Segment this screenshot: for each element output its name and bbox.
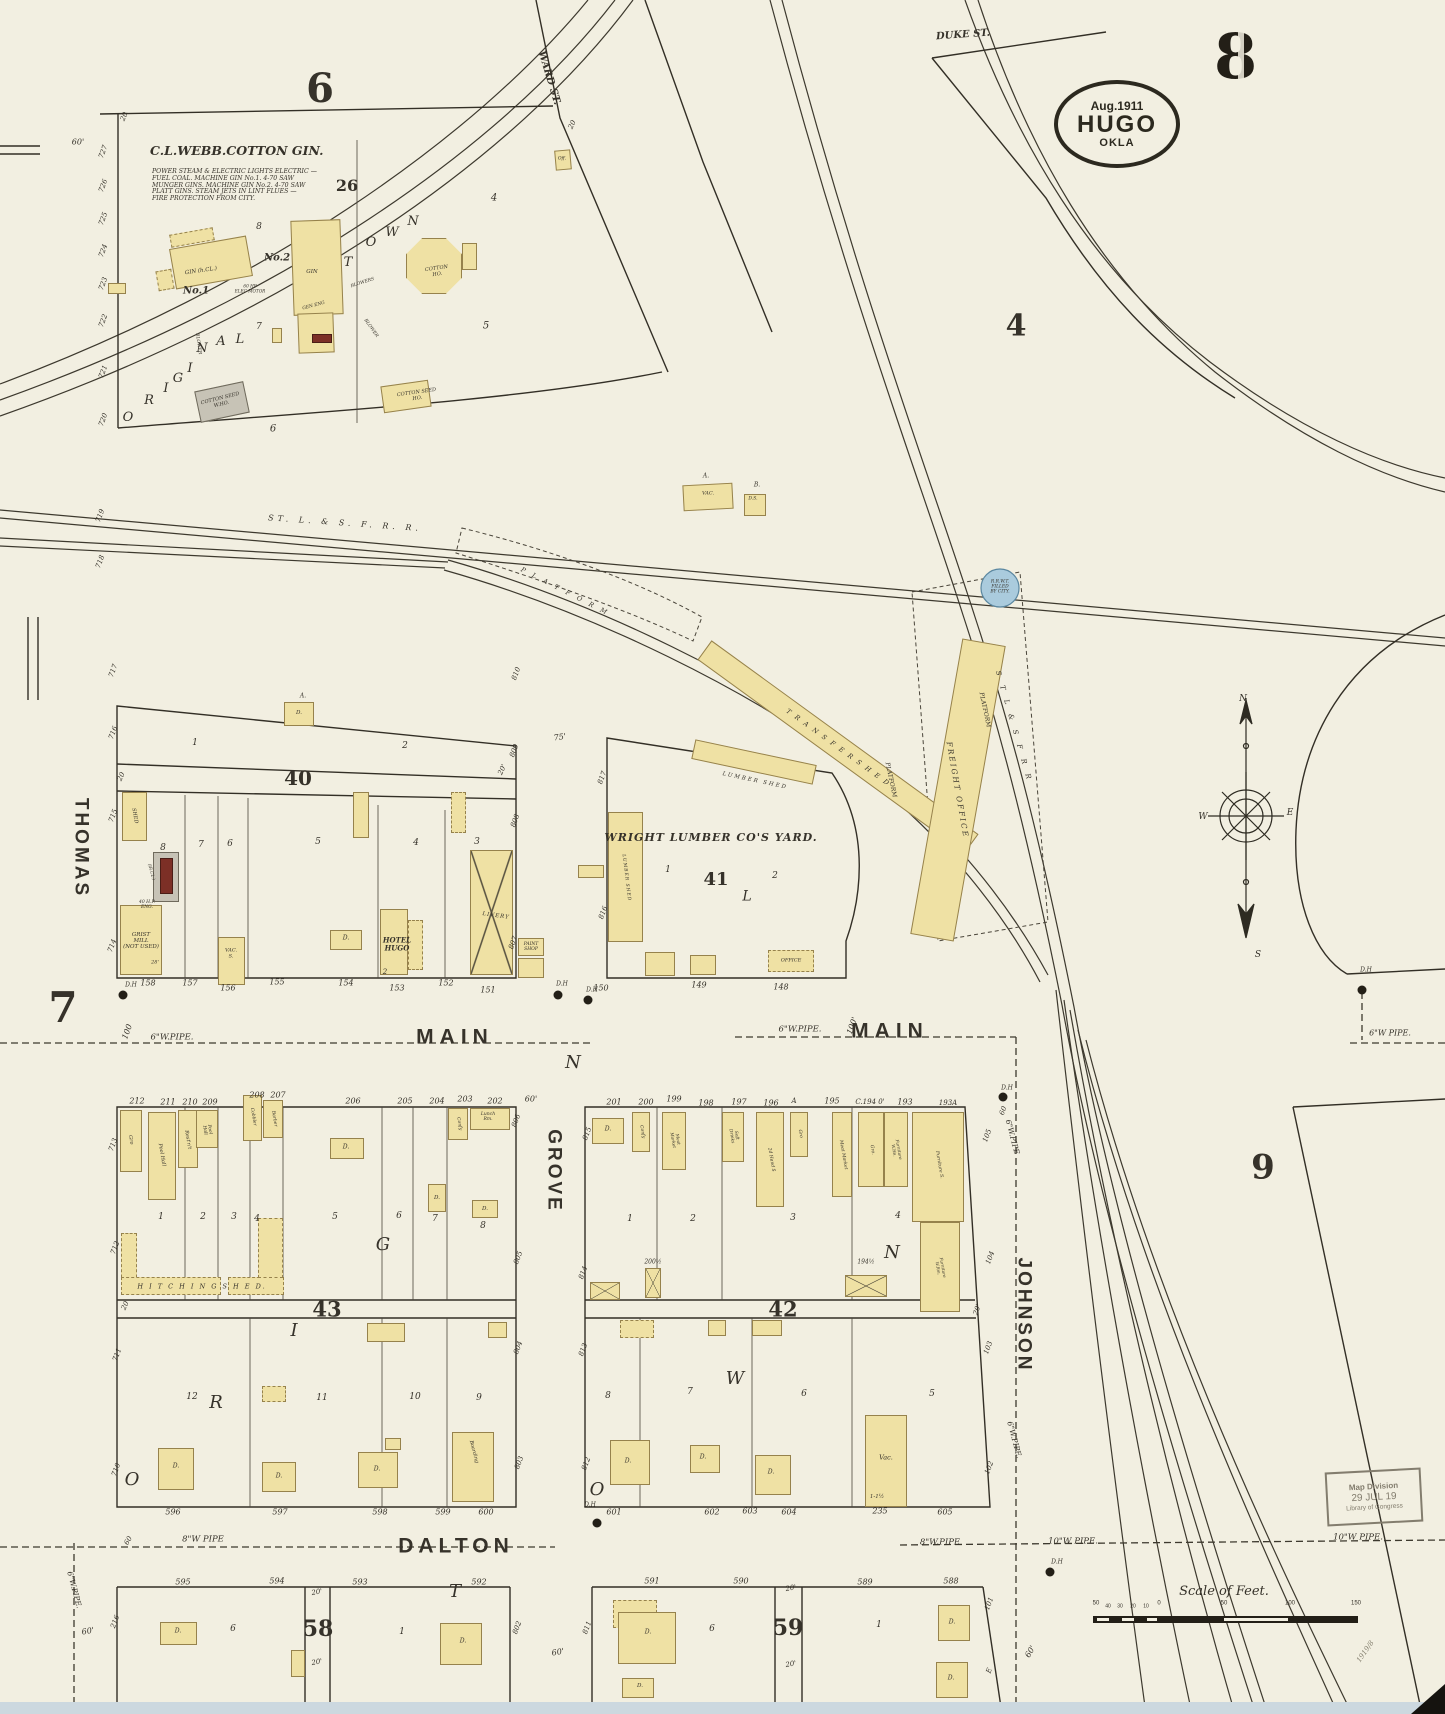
cotton-gin-notes: POWER STEAM & ELECTRIC LIGHTS ELECTRIC —… — [152, 169, 317, 203]
map-label: 202 — [487, 1098, 502, 1107]
map-label: 211 — [160, 1099, 175, 1108]
publication-stamp: Aug.1911 HUGO OKLA — [1054, 80, 1180, 168]
map-label: 5 — [929, 1390, 935, 1400]
cotton-gin-title: C.L.WEBB.COTTON GIN. — [150, 144, 323, 158]
plat-letter: N — [407, 215, 418, 229]
map-label: 5 — [332, 1213, 338, 1223]
map-label: 20 — [1130, 1604, 1136, 1610]
map-label: 40 H.P. ENG. — [139, 901, 155, 911]
map-label: 60 — [999, 1105, 1009, 1116]
pipe-label: 6"W.PIPE. — [151, 1033, 194, 1042]
plat-letter: N — [565, 1053, 581, 1073]
map-label: 4 — [413, 839, 419, 849]
map-label: D. — [434, 1195, 440, 1201]
map-label: 6 — [230, 1625, 236, 1635]
map-label: 20' — [785, 1660, 797, 1669]
map-label: D. — [482, 1206, 488, 1212]
map-label: D.H — [1360, 968, 1372, 975]
double-hydrant-dot — [1358, 986, 1367, 995]
map-label: 60' — [1024, 1644, 1038, 1659]
map-label: SHED — [130, 808, 138, 824]
sanborn-map-sheet: DUKE ST.WARD ST.660'2020C.L.WEBB.COTTON … — [0, 0, 1445, 1714]
map-label: 712 — [110, 1240, 122, 1255]
map-label: 150 — [1351, 1601, 1361, 1608]
stamp-date: Aug.1911 — [1091, 100, 1144, 112]
map-label: 20 — [117, 771, 128, 782]
map-label: D.H — [1051, 1560, 1063, 1567]
map-label: 7 — [256, 323, 262, 333]
map-label: 212 — [129, 1098, 144, 1107]
double-hydrant-dot — [1046, 1568, 1055, 1577]
transfer-shed-label: T R A N S F E R S H E D — [785, 708, 892, 788]
map-label: GEN ENG — [302, 302, 326, 313]
map-label: 716 — [108, 725, 120, 740]
map-label: 103 — [983, 1340, 995, 1355]
sheet-number-stencil-stripe — [1238, 28, 1244, 80]
plat-letter: O — [123, 411, 134, 425]
map-label: 1 — [399, 1628, 405, 1638]
map-label: 588 — [943, 1578, 958, 1587]
plat-letter: A — [216, 335, 225, 349]
map-label: GIN — [306, 269, 317, 275]
plat-letter: T — [449, 1582, 461, 1602]
map-label: Gro — [126, 1135, 133, 1145]
street-duke: DUKE ST. — [936, 28, 991, 43]
map-label: 75' — [553, 733, 566, 743]
map-label: D. — [276, 1474, 283, 1481]
map-label: D. — [949, 1620, 956, 1627]
map-label: 8 — [480, 1222, 486, 1232]
map-label: D.H — [586, 988, 598, 995]
map-label: 8 — [256, 223, 262, 233]
map-label: 7 — [198, 841, 204, 851]
map-label: 209 — [202, 1099, 217, 1108]
map-label: 812 — [581, 1456, 593, 1471]
map-label: 20' — [311, 1658, 323, 1667]
map-label: Vac. — [879, 1454, 893, 1461]
map-label: 813 — [578, 1342, 590, 1357]
map-label: 104 — [985, 1250, 997, 1265]
map-label: 10 — [1143, 1604, 1149, 1610]
map-label: D.S. — [748, 498, 757, 503]
block-42: 42 — [768, 1297, 797, 1320]
map-label: 200 — [638, 1099, 653, 1108]
map-label: 6 — [227, 840, 233, 850]
map-label: 199 — [666, 1096, 681, 1105]
map-label: A. — [300, 694, 306, 701]
pipe-label: 6"W.PIPE. — [65, 1571, 83, 1610]
map-label: 809 — [509, 743, 521, 758]
pipe-label: 10"W PIPE. — [1048, 1537, 1098, 1546]
map-label: 193A — [939, 1100, 957, 1108]
map-label: 1 — [627, 1215, 633, 1225]
sheet-ref-6: 6 — [306, 67, 334, 111]
map-label: 1919/8 — [1356, 1640, 1376, 1665]
map-label: 100 — [121, 1023, 134, 1040]
plat-letter: I — [163, 382, 168, 396]
map-label: Confy — [637, 1125, 644, 1139]
scale-title: Scale of Feet. — [1179, 1585, 1269, 1599]
map-label: BLOWER — [362, 319, 378, 339]
map-label: LUMBER SHED — [620, 854, 631, 902]
map-label: 30 — [1117, 1604, 1123, 1610]
lumber-yard-label: WRIGHT LUMBER CO'S YARD. — [604, 832, 817, 844]
map-label: Confy — [454, 1117, 461, 1131]
map-label: 60 HP ELEC-MOTOR — [235, 284, 266, 293]
map-label: 10 — [409, 1393, 420, 1403]
map-label: 210 — [182, 1099, 197, 1108]
compass-w: W — [1198, 813, 1207, 823]
block-41: 41 — [703, 870, 728, 890]
map-label: 2 — [200, 1213, 206, 1223]
map-label: No.2 — [264, 253, 290, 264]
map-label: 235 — [872, 1508, 887, 1517]
map-label: Gro. — [868, 1145, 875, 1156]
map-label: 600 — [478, 1509, 493, 1518]
map-label: HOTEL HUGO — [383, 936, 411, 951]
map-label: 4 — [254, 1215, 260, 1225]
map-label: D.H — [556, 982, 568, 989]
plat-letter: T — [344, 256, 353, 270]
map-label: 198 — [698, 1100, 713, 1109]
map-label: 720 — [98, 412, 110, 427]
map-label: 156 — [220, 985, 235, 994]
map-label: 715 — [108, 808, 120, 823]
map-label: 714 — [107, 938, 119, 953]
map-label: D. — [700, 1455, 707, 1462]
pipe-label: 6"W.PIPE. — [1005, 1421, 1023, 1460]
platform-label: P L A T F O R M — [519, 566, 610, 617]
map-label: D.H — [1001, 1086, 1013, 1093]
map-label: 6 — [709, 1625, 715, 1635]
map-label: No.1 — [183, 286, 209, 297]
map-label: 593 — [352, 1579, 367, 1588]
map-label: 200½ — [644, 1260, 661, 1267]
map-label: D.H — [125, 983, 137, 990]
map-label: Boarding — [467, 1440, 478, 1464]
map-label: A — [791, 1098, 796, 1106]
block-58: 58 — [303, 1617, 334, 1641]
map-label: 20' — [973, 1304, 984, 1317]
map-label: PLATFORM — [977, 692, 991, 728]
double-hydrant-dot — [584, 996, 593, 1005]
sheet-ref-9: 9 — [1251, 1149, 1275, 1186]
plat-letter: W — [385, 226, 398, 240]
map-label: 5 — [315, 838, 321, 848]
map-label: Gro — [796, 1129, 802, 1138]
map-label: 149 — [691, 982, 706, 991]
map-label: D. — [948, 1676, 955, 1683]
map-label: 815 — [582, 1126, 594, 1141]
block-26: 26 — [336, 177, 358, 195]
map-label: 216 — [110, 1614, 122, 1629]
street-main: MAIN — [416, 1025, 494, 1048]
map-label: 155 — [269, 979, 284, 988]
map-label: 20' — [785, 1584, 797, 1593]
map-label: 723 — [98, 276, 110, 291]
map-label: COTTON HO. — [425, 265, 449, 279]
map-label: 726 — [98, 178, 110, 193]
map-label: D. — [343, 1145, 350, 1152]
map-label: 208 — [249, 1092, 264, 1101]
map-label: 12 — [186, 1393, 197, 1403]
plat-letter: I — [290, 1321, 297, 1341]
map-label: D. — [637, 1683, 643, 1689]
map-label: 60' — [81, 1627, 95, 1638]
map-label: 811 — [582, 1620, 594, 1635]
map-label: 605 — [937, 1509, 952, 1518]
map-label: 805 — [513, 1250, 525, 1265]
map-label: 1 — [665, 866, 671, 876]
map-label: H I T C H I N G S H E D. — [137, 1283, 266, 1290]
block-43: 43 — [312, 1297, 341, 1320]
map-label: 100 — [1285, 1601, 1295, 1608]
map-label: Furniture S. — [933, 1151, 943, 1179]
water-tank-note: R.R.W.T. FILLED BY CITY. — [990, 581, 1009, 596]
map-label: 802 — [512, 1620, 524, 1635]
map-label: Off. — [558, 158, 566, 163]
map-label: 3 — [474, 838, 480, 848]
railroad-label: S T L & S F R R — [993, 670, 1032, 784]
map-label: 594 — [269, 1578, 284, 1587]
map-label: 20 — [121, 1300, 132, 1311]
map-label: 60' — [72, 139, 84, 148]
map-label: 2 — [772, 872, 778, 882]
freight-office-label: FREIGHT OFFICE — [944, 741, 969, 839]
double-hydrant-dot — [999, 1093, 1008, 1102]
map-label: Pool Hall — [200, 1124, 211, 1135]
map-label: 725 — [98, 211, 110, 226]
loc-line3: Library of Congress — [1346, 1502, 1403, 1513]
map-label: 604 — [781, 1509, 796, 1518]
map-label: VAC. — [702, 491, 714, 497]
map-label: 602 — [704, 1509, 719, 1518]
map-label: 20' — [311, 1588, 323, 1597]
street-johnson: JOHNSON — [1013, 1258, 1034, 1373]
map-label: 60' — [551, 1648, 565, 1659]
map-label: 718 — [95, 554, 107, 569]
map-label: PAINT SHOP — [524, 943, 539, 953]
map-label: 5 — [483, 321, 489, 332]
map-label: 2 — [383, 969, 387, 977]
sheet-number-text: 8 — [1214, 20, 1257, 93]
map-label: 6 — [270, 424, 276, 435]
map-label: 589 — [857, 1579, 872, 1588]
map-label: 591 — [644, 1578, 659, 1587]
map-label: Meat Market — [837, 1140, 847, 1170]
map-label: 154 — [338, 980, 353, 989]
map-label: GRIST MILL (NOT USED) — [123, 932, 159, 950]
map-label: 8 — [605, 1392, 611, 1402]
compass-s: S — [1255, 951, 1261, 961]
map-label: 1 — [158, 1213, 164, 1223]
map-label: (IR.CL.) — [147, 863, 156, 880]
map-label: 6 — [396, 1212, 402, 1222]
map-label: 196 — [763, 1100, 778, 1109]
map-label: 206 — [345, 1098, 360, 1107]
map-label: 1 — [876, 1621, 882, 1631]
map-label: E — [986, 1667, 995, 1674]
street-dalton: DALTON — [398, 1534, 514, 1557]
map-label: 596 — [165, 1509, 180, 1518]
map-label: 193 — [897, 1099, 912, 1108]
map-label: 2d Hand S — [765, 1148, 774, 1173]
plat-letter: R — [144, 394, 154, 408]
map-label: 20 — [568, 119, 579, 130]
double-hydrant-dot — [593, 1519, 602, 1528]
compass-n: N — [1239, 695, 1247, 705]
map-label: 153 — [389, 985, 404, 994]
map-label: Lunch Rm. — [481, 1113, 495, 1123]
map-label: D. — [625, 1459, 632, 1466]
map-label: 0 — [1157, 1601, 1160, 1608]
map-label: 1 — [192, 739, 198, 749]
sheet-number: 8 — [1214, 20, 1257, 93]
map-label: D. — [343, 936, 350, 943]
map-label: 105 — [982, 1128, 994, 1143]
double-hydrant-dot — [554, 991, 563, 1000]
compass-e: E — [1287, 809, 1294, 819]
plat-letter: I — [187, 362, 192, 376]
map-label: 6 — [801, 1390, 807, 1400]
map-label: LUMBER SHED — [722, 771, 788, 791]
map-label: 151 — [480, 987, 495, 996]
pipe-label: 6"W PIPE. — [1369, 1030, 1411, 1039]
map-label: 204 — [429, 1098, 444, 1107]
library-of-congress-stamp: Map Division 29 JUL 19 Library of Congre… — [1325, 1468, 1424, 1527]
map-label: 816 — [598, 905, 610, 920]
map-label: D. — [175, 1629, 182, 1636]
map-label: D. — [768, 1470, 775, 1477]
map-label: 595 — [175, 1579, 190, 1588]
map-label: D. — [460, 1639, 467, 1646]
map-label: 148 — [773, 984, 788, 993]
map-label: 20' — [497, 763, 509, 776]
stamp-city: HUGO — [1077, 113, 1157, 137]
map-label: 599 — [435, 1509, 450, 1518]
map-label: Barber — [269, 1111, 277, 1127]
map-label: 4 — [895, 1212, 901, 1222]
map-label: Pool Hall — [156, 1143, 165, 1167]
plat-letter: O — [125, 1470, 140, 1490]
map-label: 803 — [514, 1455, 526, 1470]
map-label: GIN (h.CL.) — [185, 266, 218, 276]
map-label: 194½ — [857, 1260, 874, 1267]
map-label: 711 — [112, 1347, 124, 1362]
map-label: 60 — [123, 1535, 134, 1547]
map-label: B. — [754, 483, 760, 490]
map-label: 814 — [578, 1265, 590, 1280]
map-label: COTTON SEED HO. — [397, 388, 438, 404]
map-label: 806 — [511, 1113, 523, 1128]
map-label: 50 — [1221, 1601, 1228, 1608]
pipe-label: 6"W.PIPE — [1003, 1119, 1020, 1155]
double-hydrant-dot — [119, 991, 128, 1000]
map-label: 722 — [98, 313, 110, 328]
map-label: 157 — [182, 980, 197, 989]
map-label: 603 — [742, 1508, 757, 1517]
map-label: 20 — [120, 111, 131, 122]
map-label: D. — [605, 1127, 612, 1134]
map-label: 592 — [471, 1579, 486, 1588]
map-label: D. — [173, 1464, 180, 1471]
map-label: 50 — [1093, 1601, 1100, 1608]
map-label: 727 — [98, 144, 110, 159]
map-label: 197 — [731, 1099, 746, 1108]
sheet-ref-4: 4 — [1006, 310, 1027, 343]
plat-letter: O — [366, 236, 377, 250]
map-label: 7 — [432, 1215, 438, 1225]
map-label: 804 — [513, 1340, 525, 1355]
map-label: Soft Drinks — [727, 1128, 739, 1144]
map-label: 601 — [606, 1509, 621, 1518]
map-label: 195 — [824, 1098, 839, 1107]
map-label: Cobbler — [248, 1108, 256, 1127]
map-label: 590 — [733, 1578, 748, 1587]
map-label: OFFICE — [781, 958, 802, 964]
plat-letter: W — [726, 1369, 745, 1389]
map-label: C.194 0' — [855, 1099, 884, 1107]
map-label: 597 — [272, 1509, 287, 1518]
plat-letter: N — [196, 342, 207, 356]
block-59: 59 — [773, 1616, 804, 1640]
map-label: A. — [703, 474, 709, 481]
map-label: D.H — [584, 1503, 596, 1510]
map-label: 721 — [98, 364, 110, 379]
map-label: 1-1½ — [870, 1494, 884, 1500]
map-label: 40 — [1105, 1604, 1111, 1610]
map-label: 201 — [606, 1099, 621, 1108]
map-label: BLOWERS — [351, 278, 376, 290]
map-label: D. — [645, 1630, 652, 1637]
map-label: 719 — [95, 508, 107, 523]
street-thomas: THOMAS — [70, 798, 91, 898]
map-label: 810 — [511, 666, 523, 681]
map-label: 2 — [690, 1215, 696, 1225]
map-label: 4 — [491, 193, 497, 204]
map-label: 7 — [687, 1388, 693, 1398]
map-label: D. — [296, 710, 302, 716]
plat-letter: L — [742, 889, 751, 904]
map-label: D. — [374, 1467, 381, 1474]
pipe-label: 8"W.PIPE — [920, 1538, 960, 1547]
map-label: 11 — [316, 1394, 327, 1404]
sheet-ref-7: 7 — [48, 985, 77, 1031]
map-label: 28' — [151, 960, 159, 966]
map-label: 60' — [525, 1096, 537, 1105]
pipe-label: 8"W PIPE — [182, 1535, 224, 1544]
map-label: 101 — [984, 1596, 996, 1611]
street-main: MAIN — [851, 1019, 929, 1042]
plat-letter: O — [590, 1480, 605, 1500]
map-label: 808 — [510, 813, 522, 828]
map-label: 807 — [508, 935, 520, 950]
map-label: 710 — [111, 1462, 123, 1477]
plat-letter: R — [209, 1393, 223, 1413]
map-label: 717 — [108, 663, 120, 678]
map-label: 152 — [438, 980, 453, 989]
plat-letter: G — [173, 372, 183, 386]
map-label: 2 — [402, 742, 408, 752]
map-label: 598 — [372, 1509, 387, 1518]
map-label: 817 — [597, 770, 609, 785]
map-label: 205 — [397, 1098, 412, 1107]
map-label: 3 — [790, 1214, 796, 1224]
map-label: VAC. S. — [225, 949, 237, 960]
map-label: Meat Market — [668, 1131, 680, 1148]
map-label: 207 — [270, 1092, 285, 1101]
map-label: 8 — [160, 844, 166, 854]
